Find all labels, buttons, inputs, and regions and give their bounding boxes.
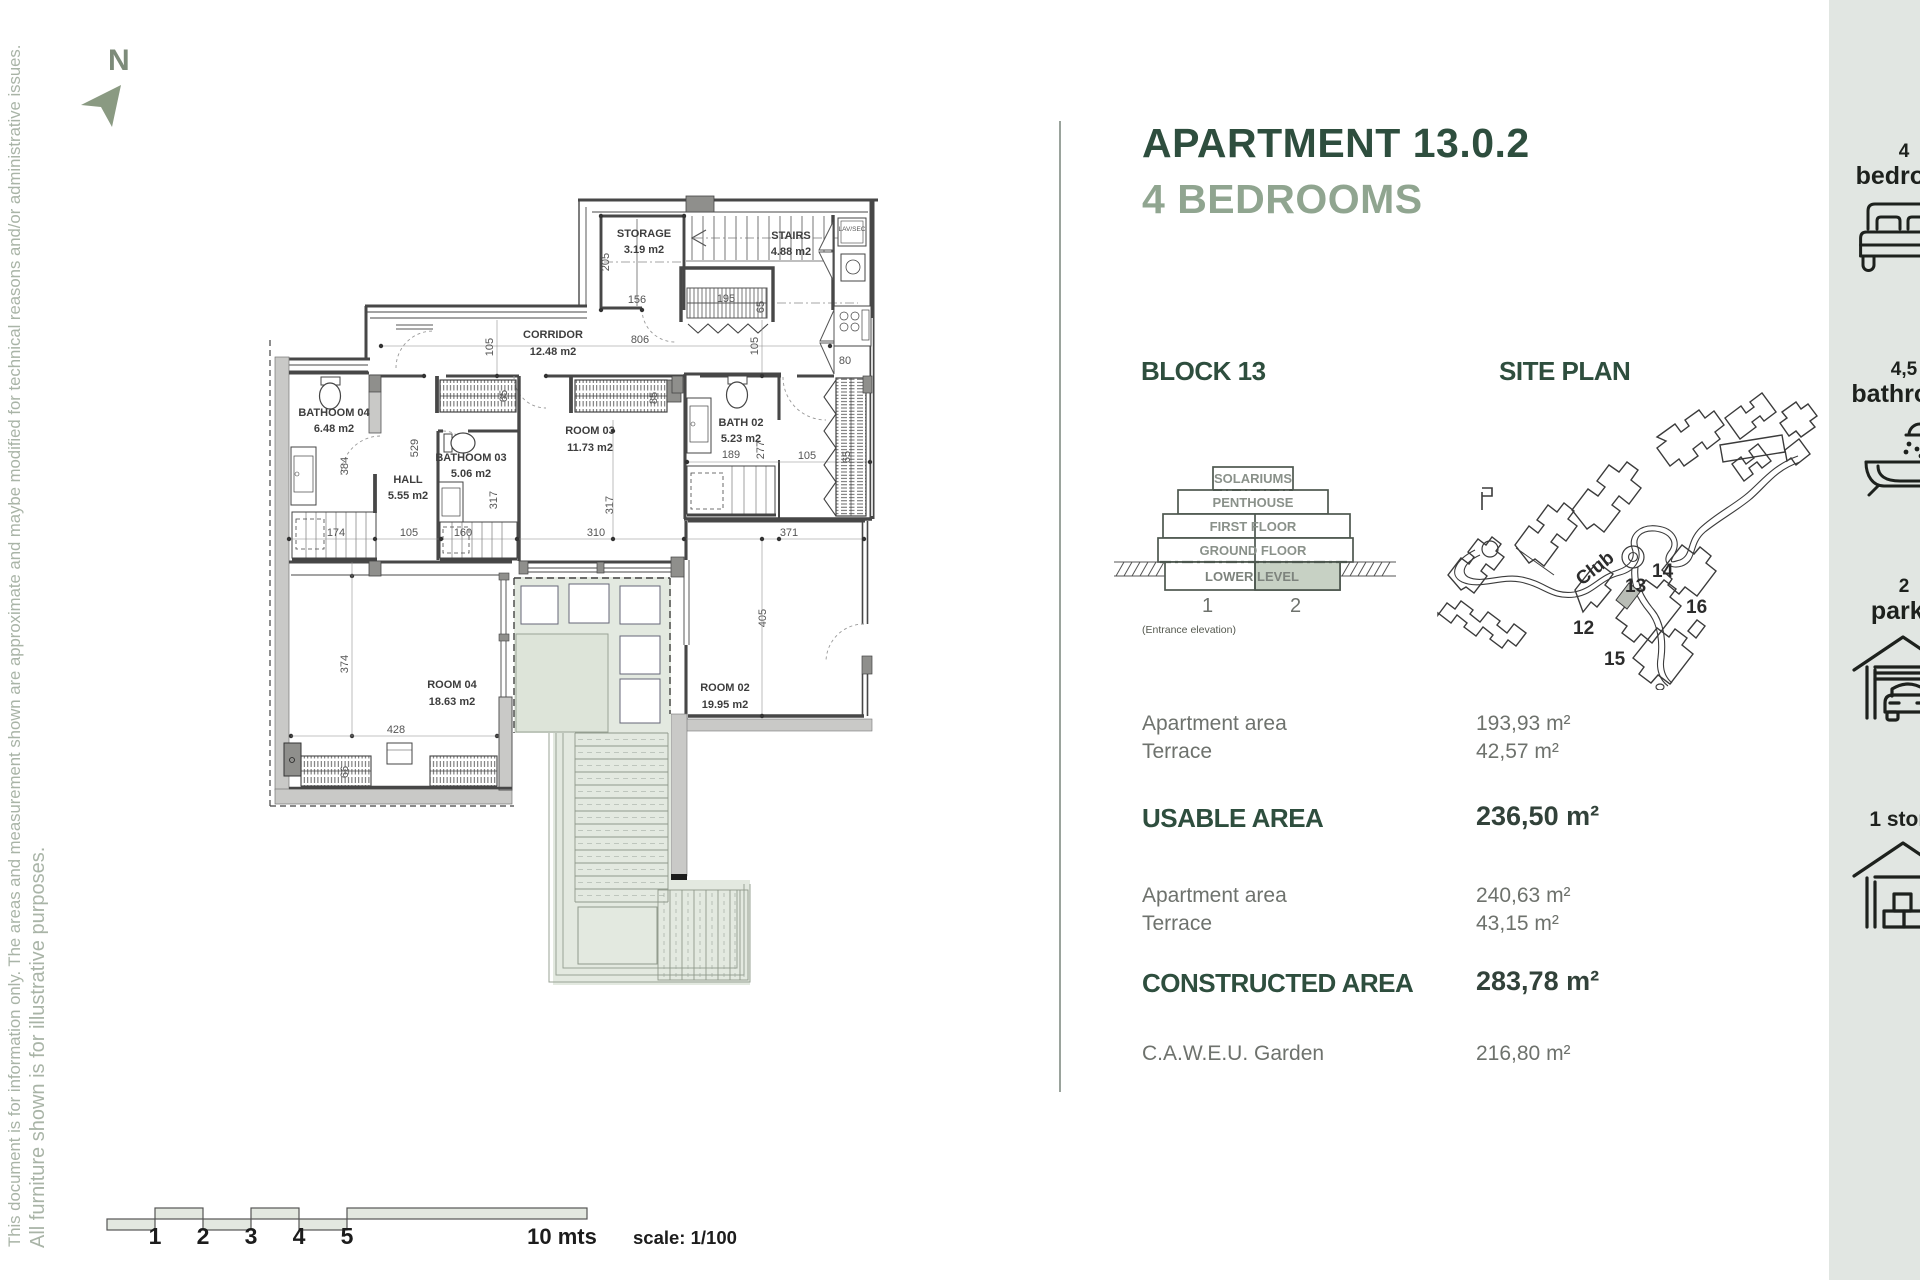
- svg-text:19.95 m2: 19.95 m2: [702, 699, 748, 711]
- svg-text:16: 16: [1686, 597, 1707, 618]
- svg-text:1: 1: [1202, 595, 1213, 617]
- svg-text:ROOM 04: ROOM 04: [427, 679, 477, 691]
- svg-text:FIRST FLOOR: FIRST FLOOR: [1210, 519, 1297, 534]
- svg-text:12.48 m2: 12.48 m2: [530, 346, 576, 358]
- svg-text:384: 384: [339, 457, 351, 475]
- svg-text:66: 66: [339, 766, 351, 778]
- svg-text:14: 14: [1652, 561, 1674, 582]
- svg-text:4: 4: [293, 1223, 306, 1249]
- svg-text:80: 80: [839, 355, 851, 367]
- svg-text:277: 277: [755, 441, 767, 459]
- svg-text:174: 174: [327, 527, 345, 539]
- svg-text:105: 105: [798, 450, 816, 462]
- svg-text:374: 374: [339, 655, 351, 673]
- svg-text:STORAGE: STORAGE: [617, 228, 671, 240]
- svg-text:18.63 m2: 18.63 m2: [429, 696, 475, 708]
- svg-text:65: 65: [498, 390, 510, 402]
- svg-text:428: 428: [387, 724, 405, 736]
- svg-text:SOLARIUMS: SOLARIUMS: [1214, 471, 1292, 486]
- svg-text:BATH 02: BATH 02: [718, 417, 763, 429]
- svg-text:3: 3: [245, 1223, 258, 1249]
- svg-text:205: 205: [600, 253, 612, 271]
- svg-text:scale: 1/100: scale: 1/100: [633, 1227, 737, 1248]
- svg-text:(Entrance elevation): (Entrance elevation): [1142, 624, 1236, 636]
- svg-text:STAIRS: STAIRS: [771, 230, 811, 242]
- svg-text:GROUND FLOOR: GROUND FLOOR: [1200, 543, 1307, 558]
- svg-text:105: 105: [400, 527, 418, 539]
- svg-text:ROOM 03: ROOM 03: [565, 425, 615, 437]
- svg-text:LAV/SEC: LAV/SEC: [839, 226, 866, 233]
- svg-text:4.88 m2: 4.88 m2: [771, 246, 811, 258]
- svg-text:13: 13: [1625, 576, 1646, 597]
- svg-text:Club: Club: [1572, 547, 1618, 590]
- svg-text:BATHOOM 04: BATHOOM 04: [298, 407, 370, 419]
- svg-text:310: 310: [587, 527, 605, 539]
- svg-text:65: 65: [755, 301, 767, 313]
- svg-text:85: 85: [648, 392, 660, 404]
- svg-text:317: 317: [488, 491, 500, 509]
- svg-text:LOWER LEVEL: LOWER LEVEL: [1205, 569, 1299, 584]
- svg-text:105: 105: [749, 337, 761, 355]
- svg-text:5: 5: [341, 1223, 354, 1249]
- svg-text:CORRIDOR: CORRIDOR: [523, 329, 583, 341]
- svg-text:12: 12: [1573, 618, 1594, 639]
- svg-text:3.19 m2: 3.19 m2: [624, 244, 664, 256]
- svg-text:ROOM 02: ROOM 02: [700, 682, 750, 694]
- svg-text:2: 2: [1290, 595, 1301, 617]
- svg-text:BATHOOM 03: BATHOOM 03: [435, 452, 506, 464]
- svg-text:806: 806: [631, 334, 649, 346]
- svg-text:5.55 m2: 5.55 m2: [388, 490, 428, 502]
- svg-text:11.73 m2: 11.73 m2: [567, 442, 613, 454]
- svg-text:160: 160: [454, 527, 472, 539]
- svg-text:195: 195: [717, 293, 735, 305]
- svg-text:371: 371: [780, 527, 798, 539]
- svg-text:105: 105: [484, 338, 496, 356]
- svg-text:HALL: HALL: [393, 474, 423, 486]
- svg-text:529: 529: [409, 439, 421, 457]
- svg-text:10 mts: 10 mts: [527, 1224, 597, 1249]
- svg-text:6.48 m2: 6.48 m2: [314, 423, 354, 435]
- svg-text:189: 189: [722, 449, 740, 461]
- svg-text:2: 2: [197, 1223, 210, 1249]
- svg-text:156: 156: [628, 294, 646, 306]
- svg-text:15: 15: [1604, 649, 1626, 670]
- svg-text:PENTHOUSE: PENTHOUSE: [1213, 495, 1294, 510]
- svg-text:1: 1: [149, 1223, 162, 1249]
- svg-text:5.06 m2: 5.06 m2: [451, 468, 491, 480]
- svg-text:405: 405: [757, 609, 769, 627]
- svg-text:317: 317: [604, 496, 616, 514]
